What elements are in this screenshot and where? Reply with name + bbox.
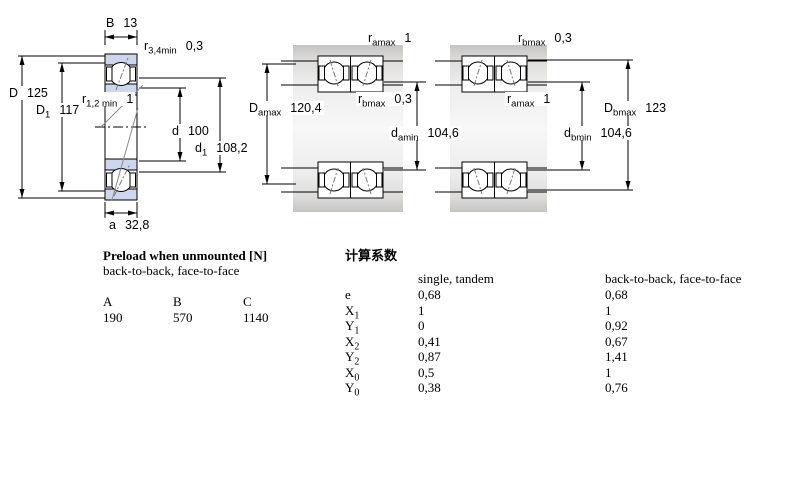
calculation-factors-table: 计算系数 single, tandem back-to-back, face-t… bbox=[345, 248, 795, 396]
dim-label-rbmax-a: rbmax0,3 bbox=[356, 92, 414, 106]
dim-label-B: B13 bbox=[104, 16, 139, 30]
preload-value-C: 1140 bbox=[243, 310, 313, 326]
factors-header-row: single, tandem back-to-back, face-to-fac… bbox=[345, 271, 795, 287]
dim-label-ramax-b: ramax1 bbox=[505, 92, 552, 106]
preload-value-A: 190 bbox=[103, 310, 173, 326]
dim-label-d: d100 bbox=[170, 124, 211, 138]
preload-col-B: B bbox=[173, 294, 243, 310]
dim-label-d1: d1108,2 bbox=[193, 141, 250, 155]
dim-label-damin: damin104,6 bbox=[389, 126, 461, 140]
dim-label-D: D125 bbox=[7, 86, 50, 100]
dim-label-D1: D1117 bbox=[34, 103, 81, 117]
factors-row-X2: X20,410,67 bbox=[345, 334, 795, 350]
factors-col2-header: back-to-back, face-to-face bbox=[605, 271, 741, 287]
preload-col-A: A bbox=[103, 294, 173, 310]
factors-row-Y0: Y00,380,76 bbox=[345, 380, 795, 396]
factors-row-Y1: Y100,92 bbox=[345, 318, 795, 334]
dim-label-a: a32,8 bbox=[107, 218, 151, 232]
bearing-spec-page: B13 r3,4min0,3 D125 r1,2 min1 D1117 d100… bbox=[0, 0, 800, 500]
ball-bottom bbox=[110, 169, 133, 192]
factors-row-X0: X00,51 bbox=[345, 365, 795, 381]
factors-row-Y2: Y20,871,41 bbox=[345, 349, 795, 365]
dim-label-r12min: r1,2 min1 bbox=[80, 92, 135, 106]
preload-value-B: 570 bbox=[173, 310, 243, 326]
dim-label-ramax-a: ramax1 bbox=[366, 31, 413, 45]
ball-top bbox=[110, 63, 133, 86]
dim-label-Damax: Damax120,4 bbox=[247, 101, 324, 115]
factors-title: 计算系数 bbox=[345, 248, 795, 263]
dim-label-r34min: r3,4min0,3 bbox=[142, 39, 205, 53]
dim-label-rbmax-b: rbmax0,3 bbox=[516, 31, 574, 45]
factors-row-e: e0,680,68 bbox=[345, 287, 795, 303]
factors-col1-header: single, tandem bbox=[418, 271, 494, 287]
dim-label-Dbmax: Dbmax123 bbox=[602, 101, 668, 115]
factors-row-X1: X111 bbox=[345, 303, 795, 319]
preload-col-C: C bbox=[243, 294, 313, 310]
dim-label-dbmin: dbmin104,6 bbox=[562, 126, 634, 140]
